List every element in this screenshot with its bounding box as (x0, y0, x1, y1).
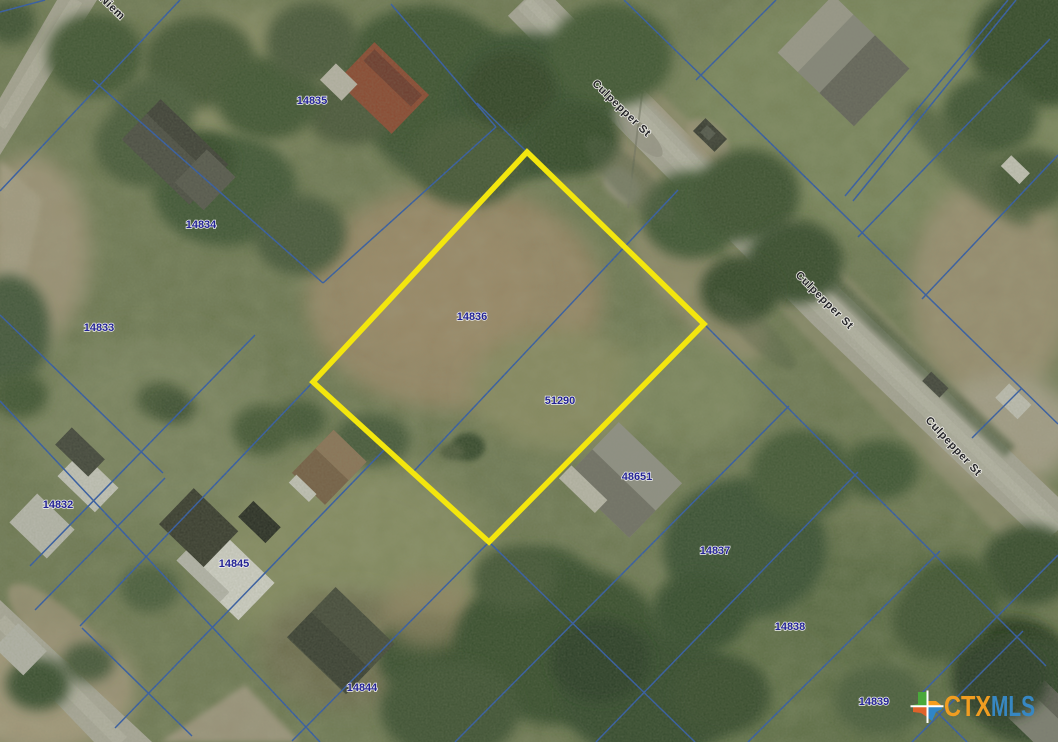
svg-text:CTX: CTX (944, 691, 992, 723)
svg-text:14833: 14833 (84, 322, 115, 334)
svg-text:14836: 14836 (457, 311, 488, 323)
svg-text:14832: 14832 (43, 499, 74, 511)
svg-text:14839: 14839 (859, 696, 890, 708)
svg-text:14844: 14844 (347, 682, 378, 694)
svg-text:14837: 14837 (700, 545, 731, 557)
svg-text:14838: 14838 (775, 621, 806, 633)
svg-text:14835: 14835 (297, 95, 328, 107)
svg-text:14845: 14845 (219, 558, 250, 570)
svg-text:51290: 51290 (545, 395, 576, 407)
svg-text:MLS: MLS (991, 691, 1035, 723)
svg-text:48651: 48651 (622, 471, 653, 483)
svg-text:14834: 14834 (186, 219, 217, 231)
